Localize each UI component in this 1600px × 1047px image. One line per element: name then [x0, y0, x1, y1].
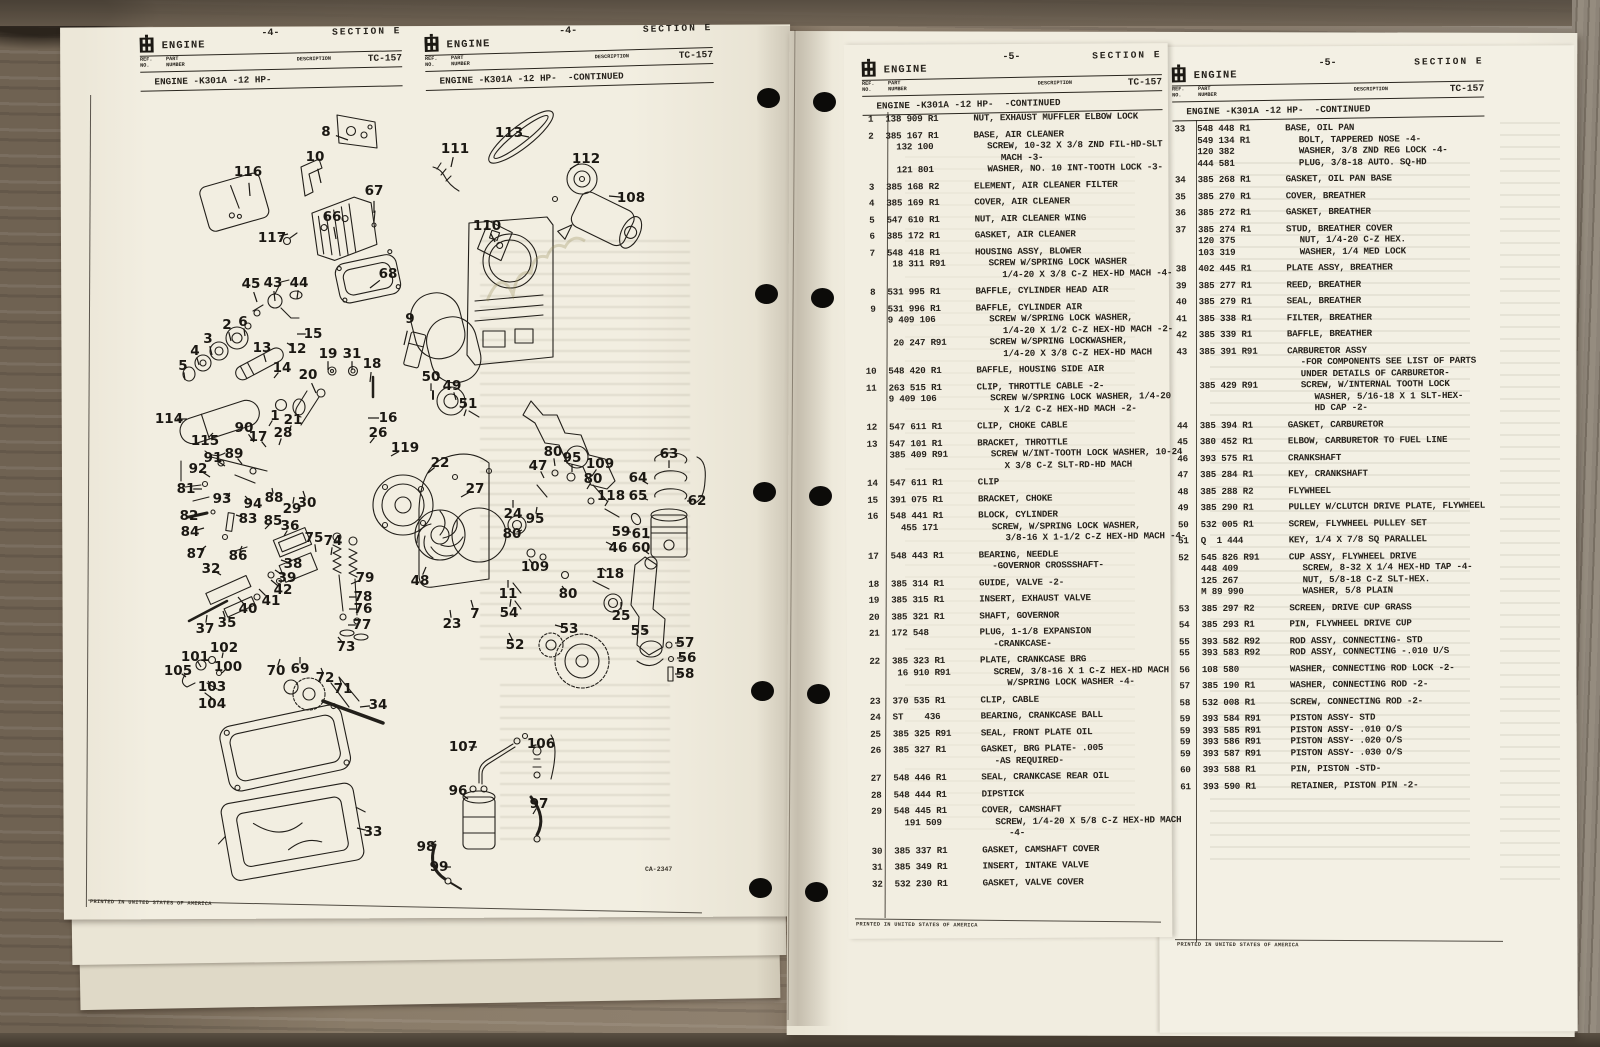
catalog-code: TC-157 [368, 53, 402, 65]
parts-line: 15391 075 R1BRACKET, CHOKE [862, 491, 1174, 506]
ref-no-cell: 61 [1175, 781, 1191, 793]
page-header-5: ENGINE -5- SECTION E REF. NO. PART NUMBE… [861, 51, 1162, 116]
callout-number: 74 [324, 533, 343, 549]
description-cell: GASKET, OIL PAN BASE [1286, 172, 1392, 184]
ref-no-cell: 32 [867, 878, 883, 890]
callout-number: 34 [369, 697, 388, 713]
parts-line: 28548 444 R1DIPSTICK [865, 786, 1177, 801]
callout-number: 53 [560, 621, 579, 637]
ref-no-cell [860, 326, 876, 338]
ref-no-cell: 10 [860, 366, 876, 378]
ref-no-cell: 2 [857, 130, 873, 142]
callout-number: 63 [660, 446, 679, 462]
parts-line: 4385 169 R1COVER, AIR CLEANER [858, 194, 1170, 209]
description-cell: PLUG, 1-1/8 EXPANSION [980, 625, 1092, 638]
description-cell: COVER, BREATHER [1286, 189, 1366, 201]
ref-no-cell: 60 [1175, 764, 1191, 776]
description-cell: NUT, EXHAUST MUFFLER ELBOW LOCK [973, 111, 1138, 125]
callout-leader-line [334, 227, 336, 239]
parts-row-group: 26385 327 R1GASKET, BRG PLATE- .005-AS R… [865, 741, 1177, 768]
description-cell: ELEMENT, AIR CLEANER FILTER [974, 178, 1118, 191]
callout-number: 111 [441, 141, 469, 157]
description-cell: SCREW, 1/4-20 X 5/8 C-Z HEX-HD MACH [982, 814, 1182, 828]
ref-no-cell: 23 [864, 695, 880, 707]
part-number-cell: 103 319 [1198, 246, 1286, 258]
parts-row-group: 52545 826 R91CUP ASSY, FLYWHEEL DRIVE448… [1173, 549, 1493, 598]
part-number-cell: 385 314 R1 [891, 577, 979, 590]
description-cell: PISTON ASSY- .010 O/S [1290, 723, 1402, 735]
description-cell: PLATE ASSY, BREATHER [1286, 261, 1392, 273]
parts-row-group: 6385 172 R1GASKET, AIR CLEANER [859, 227, 1171, 242]
exploded-engine-diagram: 8101161176766689454344263451512131419311… [85, 105, 730, 905]
description-cell: SCREW, CONNECTING ROD -2- [1290, 695, 1423, 708]
description-cell: SEAL, BREATHER [1287, 295, 1361, 307]
page-title: ENGINE [162, 39, 206, 52]
callout-number: 24 [504, 506, 523, 522]
callout-number: 6 [238, 314, 247, 330]
parts-list-page-5: 1138 909 R1NUT, EXHAUST MUFFLER ELBOW LO… [857, 110, 1179, 895]
parts-line: 51Q 1 444KEY, 1/4 X 7/8 SQ PARALLEL [1173, 533, 1493, 547]
description-cell: FILTER, BREATHER [1287, 311, 1372, 323]
callout-number: 49 [443, 378, 462, 394]
part-number-cell: 385 429 R91 [1199, 379, 1287, 391]
part-number-cell: 120 382 [1197, 145, 1285, 157]
ref-no-cell [1170, 235, 1186, 247]
part-number-cell: 385 272 R1 [1198, 206, 1286, 218]
ref-no-cell: 44 [1172, 420, 1188, 432]
callout-number: 115 [191, 433, 219, 449]
ref-no-cell: 28 [865, 789, 881, 801]
callout-number: 118 [597, 488, 625, 504]
callout-number: 105 [164, 663, 192, 679]
ref-no-cell: 8 [859, 287, 875, 299]
figure-code: CA-2347 [645, 866, 672, 873]
callout-number: 109 [586, 456, 614, 472]
callout-number: 33 [364, 824, 383, 840]
part-number-cell: 385 394 R1 [1200, 419, 1288, 431]
part-number-cell: 385 274 R1 [1198, 223, 1286, 235]
ref-no-cell [858, 165, 874, 177]
callout-number: 71 [334, 681, 353, 697]
part-number-cell: 448 409 [1201, 562, 1289, 574]
callout-number: 68 [379, 266, 398, 282]
description-cell: PLUG, 3/8-18 AUTO. SQ-HD [1285, 156, 1426, 169]
callout-leader-line [229, 332, 231, 341]
description-cell: NUT, AIR CLEANER WING [974, 212, 1086, 225]
page-header-5-continued: ENGINE -5- SECTION E REF. NO. PART NUMBE… [1172, 58, 1485, 122]
ref-no-cell: 5 [858, 214, 874, 226]
ref-no-cell: 52 [1173, 552, 1189, 564]
ref-no-cell: 51 [1173, 535, 1189, 547]
part-number-cell: 532 005 R1 [1201, 518, 1289, 530]
punch-hole [755, 284, 778, 304]
description-cell: BAFFLE, BREATHER [1287, 328, 1372, 340]
callout-number: 75 [305, 530, 324, 546]
header-title-row: ENGINE -4- SECTION E [139, 27, 401, 52]
callout-number: 88 [265, 490, 284, 506]
ref-no-cell: 27 [865, 773, 881, 785]
ref-no-cell [858, 142, 874, 154]
col-description: DESCRIPTION [982, 80, 1128, 89]
callout-number: 69 [291, 661, 310, 677]
part-number-cell: 385 190 R1 [1202, 679, 1290, 691]
callout-number: 112 [572, 151, 600, 167]
description-cell: GASKET, CARBURETOR [1288, 418, 1384, 430]
description-cell: BLOCK, CYLINDER [978, 509, 1058, 521]
punch-hole [749, 878, 772, 898]
description-cell: REED, BREATHER [1286, 278, 1360, 290]
ref-no-cell [864, 639, 880, 651]
parts-row-group: 15391 075 R1BRACKET, CHOKE [862, 491, 1174, 506]
parts-row-group: 29548 445 R1COVER, CAMSHAFT 191 509SCREW… [866, 802, 1178, 840]
parts-line: 27548 446 R1SEAL, CRANKCASE REAR OIL [865, 769, 1177, 784]
part-number-cell [1199, 391, 1287, 403]
part-number-cell: 444 581 [1197, 157, 1285, 169]
callout-number: 30 [298, 495, 317, 511]
parts-row-group: 5547 610 R1NUT, AIR CLEANER WING [858, 211, 1170, 226]
part-number-cell: 370 535 R1 [892, 694, 980, 707]
col-part-number: PART NUMBER [166, 55, 260, 69]
callout-number: 51 [459, 396, 478, 412]
col-description: DESCRIPTION [1292, 86, 1450, 94]
callout-number: 17 [249, 429, 268, 445]
callout-number: 13 [253, 340, 272, 356]
part-number-cell: 531 995 R1 [887, 286, 975, 299]
callout-number: 37 [196, 621, 215, 637]
callout-number: 80 [559, 586, 578, 602]
description-cell: COVER, AIR CLEANER [974, 195, 1070, 208]
parts-row-group: 41385 338 R1FILTER, BREATHER [1171, 310, 1491, 324]
ref-no-cell: 18 [863, 578, 879, 590]
callout-number: 20 [299, 367, 318, 383]
parts-row-group: 4385 169 R1COVER, AIR CLEANER [858, 194, 1170, 209]
col-ref-no: REF. NO. [140, 57, 166, 69]
section-label: SECTION E [643, 22, 713, 35]
part-number-cell: 385 293 R1 [1201, 618, 1289, 630]
ref-no-cell [1170, 247, 1186, 259]
header-title-row: ENGINE -5- SECTION E [861, 51, 1161, 77]
parts-row-group: 56108 580WASHER, CONNECTING ROD LOCK -2- [1174, 661, 1494, 675]
callout-number: 106 [527, 736, 555, 752]
callout-number: 84 [181, 524, 200, 540]
col-part-number: PART NUMBER [888, 80, 982, 94]
callout-number: 48 [411, 573, 430, 589]
ref-no-cell: 45 [1172, 436, 1188, 448]
part-number-cell: 385 279 R1 [1199, 295, 1287, 307]
ref-no-cell: 16 [862, 511, 878, 523]
ref-no-cell [1173, 586, 1189, 598]
parts-line: 59393 587 R91PISTON ASSY- .030 O/S [1175, 745, 1495, 759]
callout-number: 7 [470, 606, 479, 622]
part-number-cell: 385 284 R1 [1200, 468, 1288, 480]
description-cell: SCREW, 8-32 X 1/4 HEX-HD TAP -4- [1289, 561, 1473, 574]
part-number-cell [1199, 356, 1287, 368]
part-number-cell: 393 587 R91 [1203, 747, 1291, 759]
parts-row-group: 32532 230 R1GASKET, VALVE COVER [867, 875, 1179, 890]
description-cell: COVER, CAMSHAFT [982, 803, 1062, 815]
parts-row-group: 35385 270 R1COVER, BREATHER [1170, 188, 1490, 202]
callout-number: 12 [288, 341, 307, 357]
callout-leader-line [370, 372, 371, 382]
ref-no-cell: 24 [865, 712, 881, 724]
part-number-cell: 532 008 R1 [1202, 696, 1290, 708]
ref-no-cell: 3 [858, 181, 874, 193]
ref-no-cell [1171, 392, 1187, 404]
col-ref-no: REF. NO. [1172, 87, 1198, 99]
ref-no-cell: 35 [1170, 191, 1186, 203]
ref-no-cell [1169, 146, 1185, 158]
callout-number: 94 [244, 496, 263, 512]
callout-number: 41 [262, 593, 281, 609]
description-cell: GUIDE, VALVE -2- [979, 576, 1064, 589]
callout-number: 14 [273, 360, 292, 376]
diagram-callout-labels: 8101161176766689454344263451512131419311… [155, 124, 706, 875]
ref-no-cell [858, 153, 874, 165]
part-number-cell: 385 288 R2 [1200, 485, 1288, 497]
callout-number: 2 [222, 317, 231, 333]
description-cell: RETAINER, PISTON PIN -2- [1291, 779, 1419, 792]
description-cell: GASKET, BRG PLATE- .005 [981, 742, 1103, 755]
parts-row-group: 33548 448 R1BASE, OIL PAN549 134 R1BOLT,… [1169, 121, 1489, 170]
description-cell: -4- [982, 827, 1025, 839]
callout-number: 1 [270, 408, 279, 424]
parts-row-group: 17548 443 R1BEARING, NEEDLE-GOVERNOR CRO… [863, 547, 1175, 574]
parts-row-group: 22385 323 R1PLATE, CRANKCASE BRG 16 910 … [864, 652, 1176, 690]
parts-row-group: 12547 611 R1CLIP, CHOKE CABLE [861, 418, 1173, 433]
ref-no-cell [1171, 369, 1187, 381]
description-cell: GASKET, AIR CLEANER [975, 228, 1076, 241]
callout-number: 64 [629, 470, 648, 486]
parts-line: 50532 005 R1SCREW, FLYWHEEL PULLEY SET [1173, 516, 1493, 530]
parts-list-page-5-continued: 33548 448 R1BASE, OIL PAN549 134 R1BOLT,… [1169, 121, 1495, 798]
description-cell: GASKET, BREATHER [1286, 206, 1371, 218]
description-cell: INSERT, INTAKE VALVE [982, 859, 1088, 872]
part-number-cell: 385 325 R91 [893, 727, 981, 740]
ref-no-cell: 11 [861, 382, 877, 394]
part-number-cell: 385 321 R1 [891, 610, 979, 623]
callout-number: 47 [529, 458, 548, 474]
callout-number: 103 [198, 679, 226, 695]
ref-no-cell: 9 [860, 303, 876, 315]
callout-number: 113 [495, 125, 523, 141]
parts-line: 18385 314 R1GUIDE, VALVE -2- [863, 575, 1175, 590]
description-cell: SEAL, FRONT PLATE OIL [981, 726, 1093, 739]
callout-number: 100 [214, 659, 242, 675]
part-number-cell: 548 444 R1 [893, 788, 981, 801]
part-number-cell: 393 582 R92 [1202, 635, 1290, 647]
punch-hole [811, 288, 834, 308]
parts-line: 3/8-16 X 1-1/2 C-Z HEX-HD MACH -4- [862, 530, 1174, 545]
callout-leader-line [318, 169, 321, 183]
description-cell: -CRANKCASE- [980, 637, 1052, 649]
parts-row-group: 38402 445 R1PLATE ASSY, BREATHER [1170, 261, 1490, 275]
callout-number: 36 [281, 518, 300, 534]
callout-number: 60 [632, 540, 651, 556]
ref-no-cell [1173, 563, 1189, 575]
parts-line: 14547 611 R1CLIP [862, 474, 1174, 489]
col-part-number: PART NUMBER [1198, 86, 1292, 99]
description-cell: -AS REQUIRED- [981, 754, 1064, 767]
part-number-cell: 380 452 R1 [1200, 435, 1288, 447]
catalog-code: TC-157 [1128, 77, 1162, 89]
callout-leader-line [249, 183, 250, 196]
description-cell: FLYWHEEL [1288, 485, 1331, 497]
callout-number: 86 [229, 548, 248, 564]
description-cell: WASHER, 1/4 MED LOCK [1286, 245, 1406, 258]
parts-line: 6385 172 R1GASKET, AIR CLEANER [859, 227, 1171, 242]
parts-row-group: 9531 996 R1BAFFLE, CYLINDER AIR9 409 106… [860, 300, 1173, 361]
description-cell: 1/4-20 X 3/8 C-Z HEX-HD MACH [976, 346, 1152, 360]
description-cell: BRACKET, CHOKE [978, 492, 1053, 504]
description-cell: PIN, PISTON -STD- [1291, 763, 1381, 775]
ref-no-cell: 30 [866, 845, 882, 857]
callout-number: 77 [353, 617, 372, 633]
part-number-cell: M 89 990 [1201, 585, 1289, 597]
parts-row-group: 14547 611 R1CLIP [862, 474, 1174, 489]
part-number-cell [889, 460, 977, 473]
ref-no-cell: 53 [1173, 603, 1189, 615]
callout-number: 67 [365, 183, 384, 199]
parts-row-group: 47385 284 R1KEY, CRANKSHAFT [1172, 467, 1492, 481]
callout-number: 58 [676, 666, 695, 682]
callout-number: 32 [202, 561, 221, 577]
callout-number: 93 [213, 491, 232, 507]
callout-number: 85 [264, 513, 283, 529]
callout-number: 50 [422, 369, 441, 385]
description-cell: WASHER, NO. 10 INT-TOOTH LOCK -3- [974, 161, 1163, 175]
parts-line: 8531 995 R1BAFFLE, CYLINDER HEAD AIR [859, 283, 1171, 298]
catalog-code: TC-157 [679, 49, 714, 61]
callout-number: 72 [316, 670, 335, 686]
parts-row-group: 44385 394 R1GASKET, CARBURETOR [1172, 417, 1492, 431]
ref-no-cell: 19 [863, 595, 879, 607]
callout-leader-line [404, 331, 407, 345]
description-cell: CLIP [978, 476, 999, 488]
callout-number: 109 [521, 559, 549, 575]
ref-no-cell [1169, 158, 1185, 170]
ref-no-cell: 6 [859, 231, 875, 243]
part-number-cell: 393 590 R1 [1203, 780, 1291, 792]
parts-row-group: 43385 391 R91CARBURETOR ASSY-FOR COMPONE… [1171, 343, 1492, 415]
callout-number: 22 [431, 455, 450, 471]
parts-line: 42385 339 R1BAFFLE, BREATHER [1171, 327, 1491, 341]
description-cell: SCREEN, DRIVE CUP GRASS [1289, 601, 1411, 614]
description-cell: CLIP, CHOKE CABLE [977, 419, 1067, 432]
description-cell: X 1/2 C-Z HEX-HD MACH -2- [977, 402, 1137, 415]
callout-number: 114 [155, 411, 183, 427]
part-number-cell: 545 826 R91 [1201, 551, 1289, 563]
page-title: ENGINE [1194, 69, 1238, 82]
ref-no-cell [862, 534, 878, 546]
callout-number: 98 [417, 839, 436, 855]
ref-no-cell: 15 [862, 494, 878, 506]
callout-number: 99 [430, 859, 449, 875]
parts-line: 23370 535 R1CLIP, CABLE [864, 692, 1176, 707]
description-cell: GASKET, CAMSHAFT COVER [982, 843, 1099, 856]
ref-no-cell: 59 [1174, 736, 1190, 748]
parts-line: 444 581PLUG, 3/8-18 AUTO. SQ-HD [1169, 155, 1489, 169]
description-cell: CARBURETOR ASSY [1287, 344, 1367, 356]
ref-no-cell: 33 [1169, 123, 1185, 135]
parts-line: 58532 008 R1SCREW, CONNECTING ROD -2- [1174, 694, 1494, 708]
description-cell: BEARING, CRANKCASE BALL [981, 709, 1103, 722]
part-number-cell [892, 677, 980, 690]
col-description: DESCRIPTION [260, 56, 368, 64]
description-cell: SHAFT, GOVERNOR [979, 609, 1059, 621]
parts-row-group: 59393 584 R91PISTON ASSY- STD59393 585 R… [1174, 711, 1494, 760]
callout-number: 28 [274, 425, 293, 441]
part-number-cell [893, 755, 981, 768]
parts-line: -CRANKCASE- [864, 636, 1176, 651]
callout-number: 108 [617, 190, 645, 206]
callout-number: 107 [449, 739, 477, 755]
part-number-cell: 125 267 [1201, 574, 1289, 586]
ref-no-cell: 34 [1170, 174, 1186, 186]
parts-row-group: 19385 315 R1INSERT, EXHAUST VALVE [863, 591, 1175, 606]
parts-row-group: 46393 575 R1CRANKSHAFT [1172, 450, 1492, 464]
col-ref-no: REF. NO. [862, 81, 888, 93]
description-cell: STUD, BREATHER COVER [1286, 222, 1392, 234]
callout-leader-line [451, 157, 453, 167]
ref-no-cell: 38 [1170, 263, 1186, 275]
part-number-cell: 549 134 R1 [1197, 134, 1285, 146]
parts-line: -AS REQUIRED- [865, 753, 1177, 768]
callout-number: 43 [264, 275, 283, 291]
description-cell: INSERT, EXHAUST VALVE [979, 592, 1091, 605]
callout-number: 4 [190, 343, 199, 359]
description-cell: SEAL, CRANKCASE REAR OIL [981, 770, 1109, 783]
part-number-cell: 385 270 R1 [1198, 190, 1286, 202]
punch-hole [757, 88, 780, 108]
description-cell: PISTON ASSY- .020 O/S [1290, 734, 1402, 746]
ref-no-cell: 56 [1174, 664, 1190, 676]
ref-no-cell [866, 817, 882, 829]
parts-row-group: 37385 274 R1STUD, BREATHER COVER120 375N… [1170, 221, 1490, 258]
part-number-cell [890, 532, 978, 545]
description-cell: WASHER, CONNECTING ROD LOCK -2- [1290, 661, 1455, 674]
ref-no-cell [860, 315, 876, 327]
parts-row-group: 60393 588 R1PIN, PISTON -STD- [1175, 762, 1495, 776]
parts-row-group: 55393 582 R92ROD ASSY, CONNECTING- STD55… [1174, 633, 1494, 659]
part-number-cell: 385 337 R1 [894, 844, 982, 857]
parts-row-group: 42385 339 R1BAFFLE, BREATHER [1171, 327, 1491, 341]
callout-number: 3 [203, 331, 212, 347]
part-number-cell: 385 168 R2 [886, 180, 974, 193]
punch-hole [751, 681, 774, 701]
ref-no-cell [859, 270, 875, 282]
parts-row-group: 49385 290 R1PULLEY W/CLUTCH DRIVE PLATE,… [1172, 500, 1492, 514]
ref-no-cell [1171, 357, 1187, 369]
parts-row-group: 45380 452 R1ELBOW, CARBURETOR TO FUEL LI… [1172, 434, 1492, 448]
parts-line: 47385 284 R1KEY, CRANKSHAFT [1172, 467, 1492, 481]
parts-row-group: 28548 444 R1DIPSTICK [865, 786, 1177, 801]
callout-number: 35 [218, 615, 237, 631]
description-cell: KEY, 1/4 X 7/8 SQ PARALLEL [1289, 533, 1427, 546]
section-label: SECTION E [1092, 49, 1162, 61]
parts-row-group: 36385 272 R1GASKET, BREATHER [1170, 205, 1490, 219]
parts-line: 3385 168 R2ELEMENT, AIR CLEANER FILTER [858, 178, 1170, 193]
ref-no-cell [1172, 403, 1188, 415]
callout-leader-line [254, 292, 257, 302]
parts-row-group: 30385 337 R1GASKET, CAMSHAFT COVER [866, 842, 1178, 857]
parts-line: 12547 611 R1CLIP, CHOKE CABLE [861, 418, 1173, 433]
ref-no-cell: 22 [864, 656, 880, 668]
part-number-cell: 548 448 R1 [1197, 122, 1285, 134]
ref-no-cell: 29 [866, 806, 882, 818]
parts-row-group: 24ST 436BEARING, CRANKCASE BALL [865, 708, 1177, 723]
callout-number: 80 [503, 526, 522, 542]
parts-line: 46393 575 R1CRANKSHAFT [1172, 450, 1492, 464]
